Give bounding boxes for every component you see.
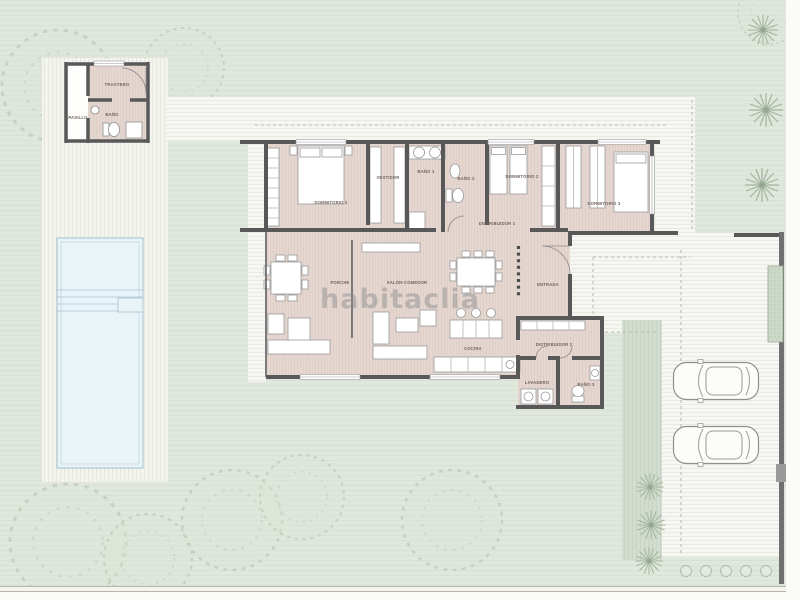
swimming-pool	[57, 238, 143, 468]
right-margin	[786, 0, 800, 600]
room-label-distribuidor-2: DISTRIBUIDOR 2	[536, 342, 573, 347]
toilet-icon	[446, 189, 464, 203]
west-walkway	[248, 140, 266, 382]
toilet-icon	[572, 386, 584, 403]
room-label-trastero: TRASTERO	[105, 82, 130, 87]
closet-icon	[394, 147, 405, 223]
room-label-distribuidor-1: DISTRIBUIDOR 1	[479, 221, 516, 226]
shower-icon	[409, 212, 425, 229]
wardrobe-icon	[566, 146, 581, 208]
room-label-pasillo: PASILLO	[68, 115, 88, 120]
room-label-lavadero: LAVADERO	[525, 380, 550, 385]
room-label-dormitorio-3: DORMITORIO 3	[587, 201, 621, 206]
room-label-bano-2: BAÑO 2	[457, 176, 474, 181]
room-label-bano-3: BAÑO 3	[577, 382, 594, 387]
closet-icon	[370, 147, 381, 223]
double-sink-icon	[409, 146, 445, 159]
car-2	[674, 424, 759, 467]
hedge	[768, 266, 783, 342]
bed-single-icon	[510, 146, 527, 194]
annex-window	[94, 61, 124, 66]
annex-toilet-icon	[103, 123, 120, 137]
annex-building	[66, 61, 148, 143]
wardrobe-icon	[267, 148, 279, 226]
watermark-text: habitaclia	[320, 284, 480, 315]
room-label-vestidor: VESTIDOR	[376, 175, 399, 180]
sink-icon	[590, 366, 600, 380]
wardrobe-icon	[590, 146, 605, 208]
pool-ledge	[118, 298, 143, 312]
kitchen-counter-icon	[434, 357, 520, 372]
room-label-entrada: ENTRADA	[537, 282, 559, 287]
bed-double-icon	[290, 146, 352, 204]
floor-plan-canvas: TRASTERO PASILLO BAÑO DORMITORIO 1 VESTI…	[0, 0, 800, 600]
closet-icon	[521, 321, 585, 330]
wardrobe-icon	[542, 146, 555, 226]
bed-single-icon	[490, 146, 507, 194]
room-label-bano-anexo: BAÑO	[105, 112, 119, 117]
annex-hall-floor	[68, 64, 88, 141]
east-path	[655, 97, 695, 237]
sideboard-icon	[362, 243, 420, 252]
floor-plan-image: TRASTERO PASILLO BAÑO DORMITORIO 1 VESTI…	[0, 0, 800, 600]
gate	[776, 464, 786, 482]
car-1	[674, 360, 759, 403]
room-label-cocina: COCINA	[464, 346, 482, 351]
room-label-dormitorio-2: DORMITORIO 2	[505, 174, 539, 179]
planting-strip	[622, 320, 662, 560]
annex-shower-icon	[126, 122, 142, 138]
room-label-bano-1: BAÑO 1	[417, 169, 434, 174]
dining-table-icon	[264, 255, 308, 301]
room-label-dormitorio-1: DORMITORIO 1	[314, 200, 348, 205]
annex-sink-icon	[91, 106, 99, 114]
bottom-boundary	[0, 586, 800, 600]
north-path	[166, 97, 695, 141]
